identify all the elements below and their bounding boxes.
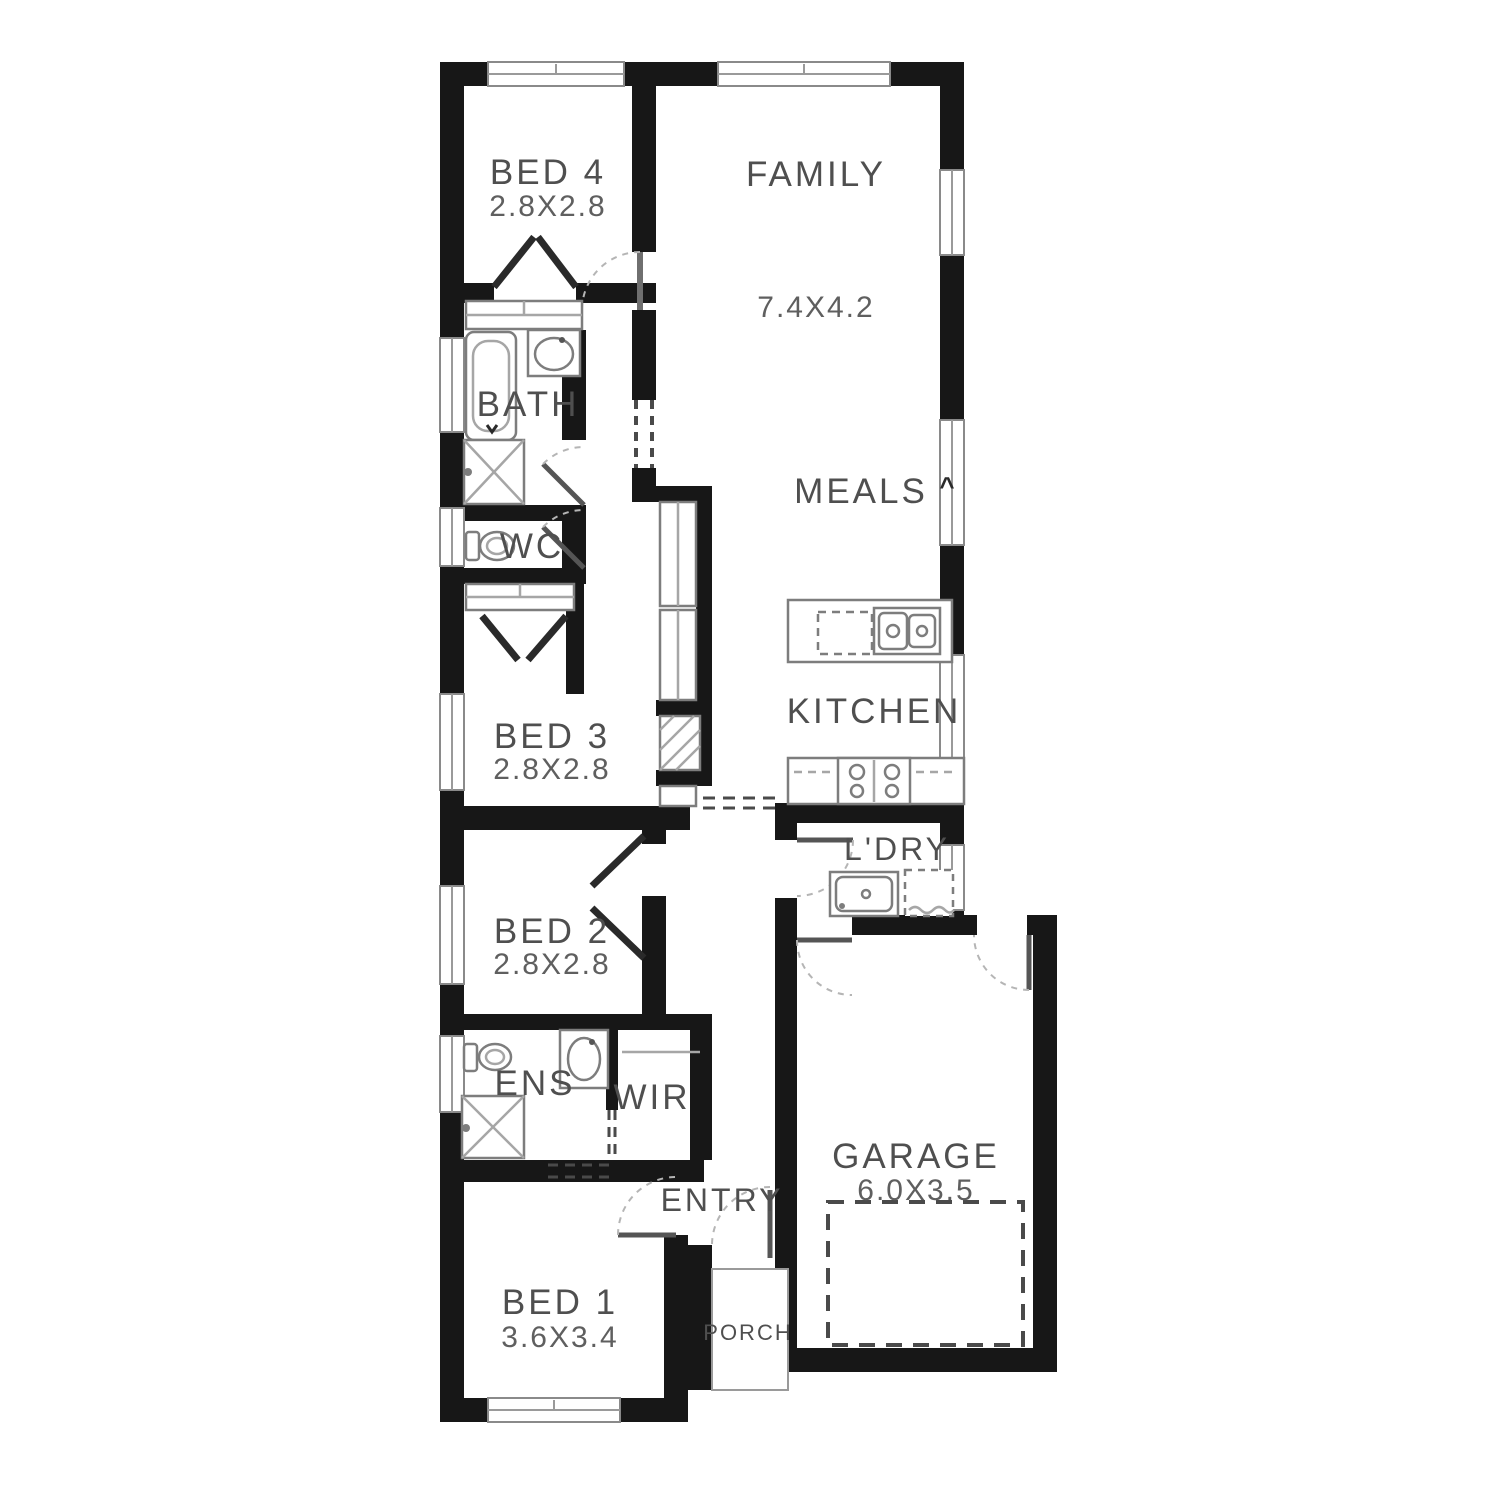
- label-bath: BATH: [477, 385, 580, 424]
- door-bath-leaf: [543, 464, 584, 505]
- kitchen-cooktop-bench: [788, 758, 964, 804]
- door-garage-external-arc: [974, 935, 1029, 990]
- window-wc-left: [440, 508, 464, 566]
- window-bath-left: [440, 338, 464, 432]
- garage-car-space: [828, 1202, 1023, 1345]
- window-bed1-bottom: [488, 1398, 620, 1422]
- window-ens-left: [440, 1036, 464, 1112]
- window-bed4-top: [488, 62, 624, 86]
- label-entry: ENTRY: [661, 1182, 784, 1218]
- hall-hatched-cupboard: [660, 716, 700, 770]
- label-laundry: L'DRY: [844, 831, 950, 867]
- meals-door-caret: ^: [939, 471, 954, 501]
- window-family-right: [940, 170, 964, 255]
- window-bed2-left: [440, 886, 464, 984]
- label-bed4: BED 4: [490, 153, 606, 192]
- hall-closet-2: [660, 610, 696, 700]
- label-porch: PORCH: [703, 1320, 792, 1345]
- ens-shower: [462, 1096, 524, 1158]
- label-bed3: BED 3: [494, 717, 610, 756]
- label-kitchen: KITCHEN: [787, 692, 962, 731]
- wall-bed1-top: [440, 1160, 704, 1182]
- floor-plan-canvas: BED 4 2.8X2.8 FAMILY 7.4X4.2 BATH MEALS …: [0, 0, 1500, 1500]
- wall-garage-right: [1033, 915, 1057, 1372]
- robe-bed4: [466, 301, 582, 329]
- hall-closet-1: [660, 502, 696, 606]
- laundry-trough: [830, 872, 898, 916]
- label-garage: GARAGE: [832, 1137, 1000, 1176]
- dims-family: 7.4X4.2: [757, 291, 874, 324]
- bath-basin: [528, 330, 580, 376]
- label-meals: MEALS: [794, 472, 928, 511]
- bath-shower: [464, 440, 524, 504]
- wall-garage-bottom: [775, 1348, 1057, 1372]
- label-ens: ENS: [495, 1064, 576, 1103]
- kitchen-island: [788, 600, 952, 662]
- door-bath-arc: [543, 447, 584, 464]
- dims-bed3: 2.8X2.8: [493, 753, 610, 786]
- dims-bed1: 3.6X3.4: [501, 1321, 618, 1354]
- wall-bed2-bottom: [440, 1014, 704, 1030]
- window-bed3-left: [440, 694, 464, 790]
- label-bed2: BED 2: [494, 912, 610, 951]
- door-garage-internal-arc: [797, 940, 852, 995]
- label-wir: WIR: [613, 1078, 690, 1117]
- label-wc: WC: [500, 527, 564, 566]
- wall-bed1-right: [664, 1235, 688, 1422]
- label-bed1: BED 1: [502, 1283, 618, 1322]
- dims-bed4: 2.8X2.8: [489, 190, 606, 223]
- robe-bed3: [466, 584, 574, 610]
- hall-closet-3: [660, 786, 696, 806]
- dims-garage: 6.0X3.5: [857, 1174, 974, 1207]
- dims-bed2: 2.8X2.8: [493, 948, 610, 981]
- wall-bed3-bottom: [440, 806, 690, 830]
- label-family: FAMILY: [746, 155, 886, 194]
- wall-porch-left: [688, 1245, 712, 1390]
- wall-spine-upper: [632, 86, 656, 252]
- window-family-top: [718, 62, 890, 86]
- laundry-washer-space: [905, 870, 954, 916]
- floor-plan-drawing: BED 4 2.8X2.8 FAMILY 7.4X4.2 BATH MEALS …: [0, 0, 1500, 1500]
- wall-kitchen-south: [775, 803, 964, 823]
